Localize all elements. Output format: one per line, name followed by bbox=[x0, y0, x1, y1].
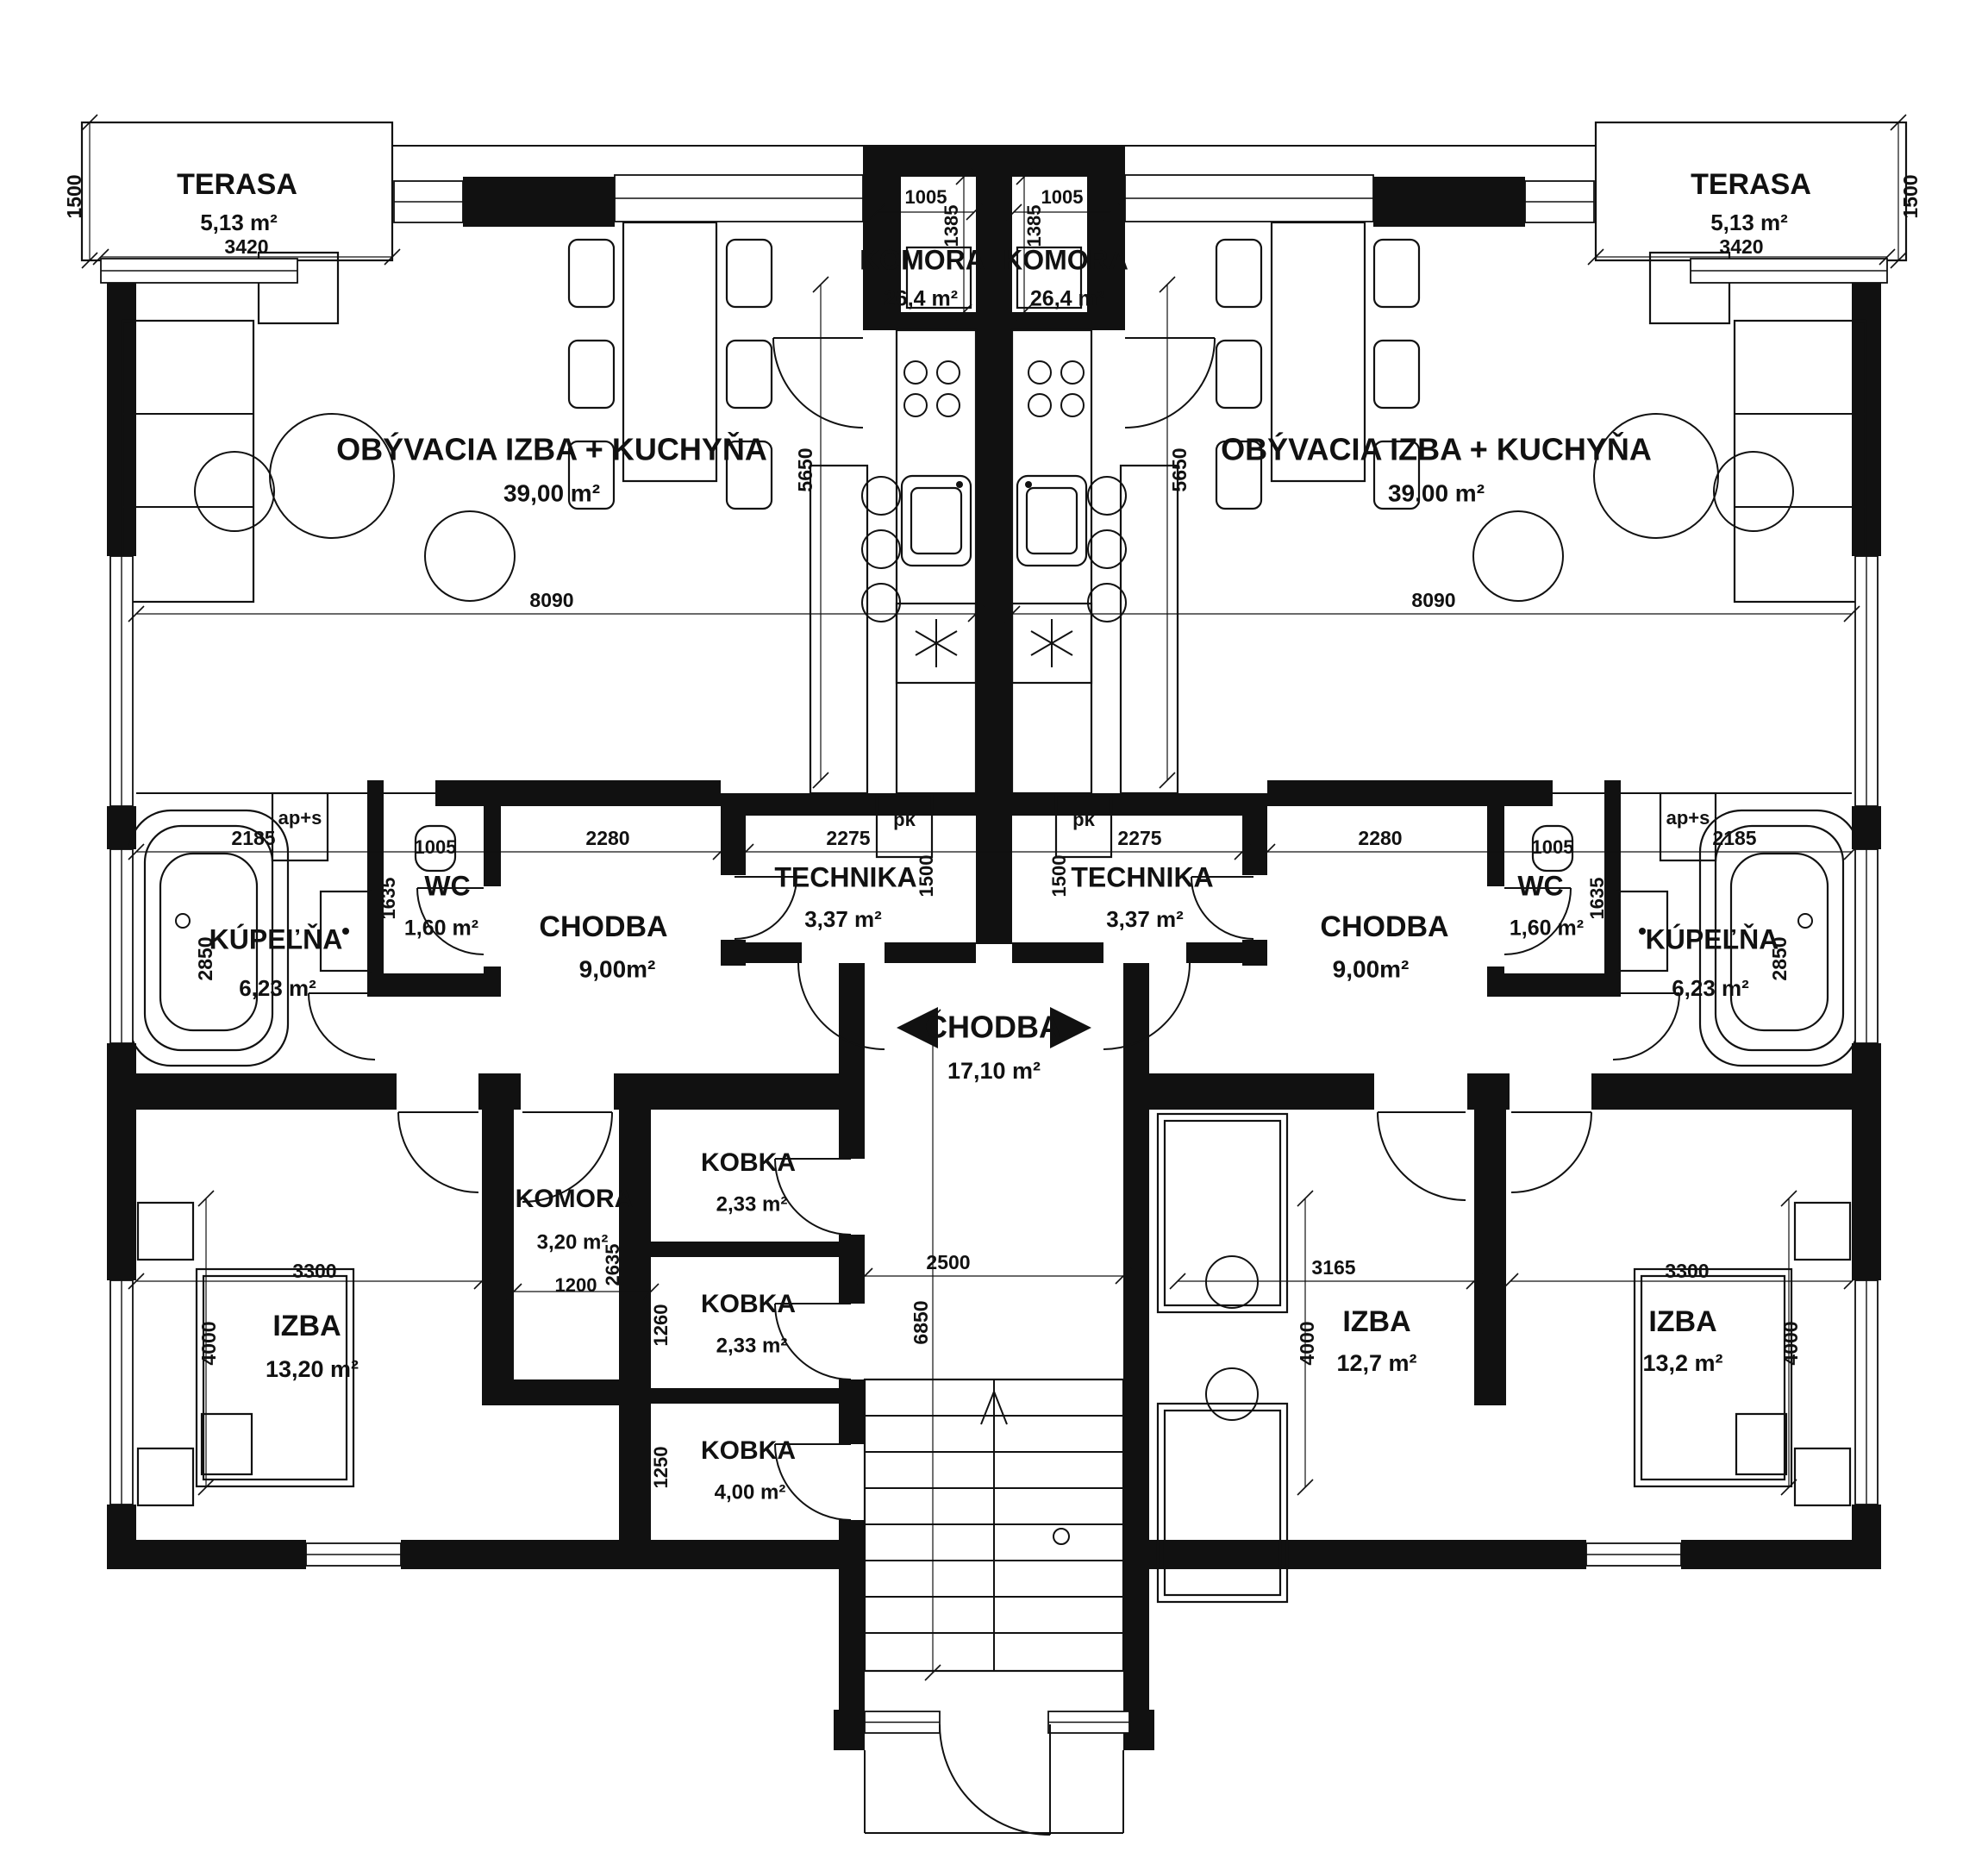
wall-segment bbox=[1591, 1073, 1852, 1110]
label-wc: WC bbox=[424, 870, 470, 901]
outline-rect bbox=[1027, 488, 1077, 554]
outline-circle bbox=[937, 361, 960, 384]
wall-segment bbox=[839, 1110, 865, 1159]
wall-segment bbox=[1467, 1073, 1510, 1110]
label-k-pe-a: KÚPEĽŇA bbox=[1646, 923, 1779, 954]
label-izba: IZBA bbox=[1648, 1305, 1716, 1338]
label-1005: 1005 bbox=[415, 836, 457, 858]
label-3165: 3165 bbox=[1311, 1256, 1355, 1279]
label-2275: 2275 bbox=[1117, 827, 1161, 849]
label-2-33-m: 2,33 m² bbox=[716, 1334, 788, 1357]
door-arc bbox=[773, 338, 863, 428]
label-1260: 1260 bbox=[650, 1304, 672, 1347]
label-izba: IZBA bbox=[272, 1310, 341, 1342]
label-komora: KOMORA bbox=[860, 244, 985, 275]
label-1-60-m: 1,60 m² bbox=[404, 916, 478, 941]
label-6850: 6850 bbox=[910, 1300, 932, 1344]
label-3-37-m: 3,37 m² bbox=[804, 906, 882, 932]
wall-segment bbox=[435, 780, 721, 806]
dot bbox=[342, 928, 349, 935]
door-arc bbox=[1378, 1112, 1466, 1200]
label-9-00m: 9,00m² bbox=[579, 955, 656, 982]
label-1500: 1500 bbox=[63, 174, 85, 218]
label-2500: 2500 bbox=[926, 1251, 970, 1273]
wall-segment bbox=[136, 1073, 397, 1110]
wall-segment bbox=[1852, 806, 1881, 849]
wall-segment bbox=[1487, 780, 1504, 886]
wall-segment bbox=[614, 1073, 865, 1110]
label-2185: 2185 bbox=[231, 827, 275, 849]
label-1500: 1500 bbox=[1899, 174, 1922, 218]
wall-segment bbox=[1474, 1110, 1506, 1405]
label-6-23-m: 6,23 m² bbox=[239, 975, 316, 1001]
label-technika: TECHNIKA bbox=[774, 861, 916, 892]
door-arc bbox=[1125, 338, 1215, 428]
label-2185: 2185 bbox=[1712, 827, 1756, 849]
label-chodba: CHODBA bbox=[1320, 910, 1448, 943]
label-4000: 4000 bbox=[1779, 1321, 1802, 1365]
label-5650: 5650 bbox=[1168, 447, 1191, 491]
outline-rect bbox=[1012, 330, 1091, 793]
outline-rect bbox=[727, 341, 772, 408]
label-2-33-m: 2,33 m² bbox=[716, 1192, 788, 1216]
wall-segment bbox=[721, 940, 746, 966]
label-1005: 1005 bbox=[1532, 836, 1574, 858]
wall-segment bbox=[651, 1242, 839, 1257]
wall-segment bbox=[746, 942, 802, 963]
wall-segment bbox=[746, 793, 976, 816]
wall-segment bbox=[1123, 1110, 1149, 1543]
label-chodba: CHODBA bbox=[539, 910, 667, 943]
dot bbox=[956, 481, 963, 488]
door-arc bbox=[309, 993, 375, 1060]
label-8090: 8090 bbox=[1411, 589, 1455, 611]
wall-segment bbox=[863, 146, 1125, 177]
plan-line bbox=[981, 1392, 994, 1424]
wall-segment bbox=[1123, 1540, 1586, 1569]
label-5-13-m: 5,13 m² bbox=[1710, 210, 1788, 235]
wall-segment bbox=[1123, 963, 1149, 1110]
wall-segment bbox=[1267, 780, 1553, 806]
floor-plan-svg: TERASA5,13 m²3420TERASA5,13 m²3420150015… bbox=[0, 0, 1988, 1858]
outline-rect bbox=[1216, 240, 1261, 307]
outline-rect bbox=[1795, 1448, 1850, 1505]
wall-segment bbox=[864, 312, 976, 329]
wall-segment bbox=[1123, 1073, 1374, 1110]
label-pk: pk bbox=[1072, 809, 1095, 830]
label-1385: 1385 bbox=[1023, 205, 1045, 247]
label-17-10-m: 17,10 m² bbox=[947, 1058, 1041, 1084]
door-arc bbox=[398, 1112, 478, 1192]
label-ob-vacia-izba-kuchy-a: OBÝVACIA IZBA + KUCHYŇA bbox=[336, 431, 767, 467]
label-1635: 1635 bbox=[378, 878, 399, 920]
outline-circle bbox=[1714, 452, 1793, 531]
wall-segment bbox=[478, 1073, 521, 1110]
label-terasa: TERASA bbox=[1691, 168, 1811, 201]
label-1635: 1635 bbox=[1586, 878, 1608, 920]
label-kobka: KOBKA bbox=[701, 1290, 796, 1318]
outline-circle bbox=[904, 361, 927, 384]
label-1200: 1200 bbox=[555, 1274, 597, 1296]
label-terasa: TERASA bbox=[177, 168, 297, 201]
wall-segment bbox=[136, 1540, 306, 1569]
label-26-4-m: 26,4 m² bbox=[1030, 287, 1104, 311]
label-1385: 1385 bbox=[941, 205, 962, 247]
wall-segment bbox=[1012, 942, 1103, 963]
wall-segment bbox=[1012, 312, 1124, 329]
label-3420: 3420 bbox=[1719, 235, 1763, 258]
label-2275: 2275 bbox=[826, 827, 870, 849]
outline-rect bbox=[138, 1203, 193, 1260]
wall-segment bbox=[401, 1540, 865, 1569]
wall-segment bbox=[1242, 793, 1267, 875]
label-2850: 2850 bbox=[1768, 936, 1791, 980]
wall-segment bbox=[484, 780, 501, 886]
wall-segment bbox=[839, 963, 865, 1110]
outline-rect bbox=[810, 466, 867, 793]
label-izba: IZBA bbox=[1342, 1305, 1410, 1338]
label-komora: KOMORA bbox=[1003, 244, 1128, 275]
label-39-00-m: 39,00 m² bbox=[503, 479, 600, 506]
outline-circle bbox=[904, 394, 927, 416]
wall-segment bbox=[107, 1043, 136, 1280]
outline-rect bbox=[911, 488, 961, 554]
outline-circle bbox=[425, 511, 515, 601]
wall-segment bbox=[1186, 942, 1242, 963]
label-1250: 1250 bbox=[650, 1447, 672, 1489]
label-ap-s: ap+s bbox=[1666, 807, 1710, 829]
label-ap-s: ap+s bbox=[278, 807, 322, 829]
label-5-13-m: 5,13 m² bbox=[200, 210, 278, 235]
wall-segment bbox=[1852, 1540, 1881, 1569]
wall-segment bbox=[463, 177, 615, 227]
label-13-2-m: 13,2 m² bbox=[1642, 1350, 1722, 1376]
label-4000: 4000 bbox=[197, 1321, 220, 1365]
label-kobka: KOBKA bbox=[701, 1148, 796, 1177]
outline-rect bbox=[1735, 321, 1866, 602]
outline-rect bbox=[1374, 240, 1419, 307]
label-1005: 1005 bbox=[1041, 186, 1084, 208]
label-komora: KOMORA bbox=[516, 1185, 634, 1213]
outline-circle bbox=[1028, 361, 1051, 384]
label-4-00-m: 4,00 m² bbox=[715, 1480, 786, 1504]
label-3-20-m: 3,20 m² bbox=[537, 1230, 609, 1254]
outline-rect bbox=[727, 240, 772, 307]
door-arc bbox=[1613, 993, 1679, 1060]
label-2635: 2635 bbox=[602, 1244, 623, 1286]
outline-rect bbox=[1736, 1414, 1786, 1474]
wall-segment bbox=[839, 1379, 865, 1444]
outline-rect bbox=[202, 1414, 252, 1474]
outline-rect bbox=[1795, 1203, 1850, 1260]
label-chodba: CHODBA bbox=[925, 1010, 1061, 1045]
outline-circle bbox=[1798, 914, 1812, 928]
label-ob-vacia-izba-kuchy-a: OBÝVACIA IZBA + KUCHYŇA bbox=[1221, 431, 1652, 467]
outline-circle bbox=[1473, 511, 1563, 601]
outline-circle bbox=[1206, 1256, 1258, 1308]
label-12-7-m: 12,7 m² bbox=[1336, 1350, 1416, 1376]
label-4000: 4000 bbox=[1296, 1321, 1318, 1365]
outline-circle bbox=[1206, 1368, 1258, 1420]
label-39-00-m: 39,00 m² bbox=[1388, 479, 1485, 506]
outline-rect bbox=[1635, 1269, 1791, 1486]
outline-rect bbox=[569, 341, 614, 408]
outline-circle bbox=[1028, 394, 1051, 416]
floor-plan: TERASA5,13 m²3420TERASA5,13 m²3420150015… bbox=[0, 0, 1988, 1858]
label-pk: pk bbox=[893, 809, 916, 830]
label-2280: 2280 bbox=[585, 827, 629, 849]
wall-segment bbox=[839, 1235, 865, 1304]
wall-segment bbox=[482, 1110, 514, 1405]
wall-segment bbox=[1852, 1043, 1881, 1280]
label-kobka: KOBKA bbox=[701, 1436, 796, 1465]
plan-line bbox=[994, 1392, 1007, 1424]
label-technika: TECHNIKA bbox=[1071, 861, 1213, 892]
outline-circle bbox=[1061, 394, 1084, 416]
label-3-37-m: 3,37 m² bbox=[1106, 906, 1184, 932]
wall-segment bbox=[651, 1388, 839, 1404]
wall-segment bbox=[976, 177, 1012, 944]
outline-rect bbox=[122, 321, 253, 602]
outline-rect bbox=[1374, 341, 1419, 408]
door-arc bbox=[940, 1724, 1050, 1835]
label-6-23-m: 6,23 m² bbox=[1672, 975, 1749, 1001]
dot bbox=[1025, 481, 1032, 488]
wall-segment bbox=[721, 793, 746, 875]
wall-segment bbox=[619, 1110, 651, 1543]
label-3300: 3300 bbox=[292, 1260, 336, 1282]
wall-segment bbox=[834, 1710, 865, 1750]
outline-rect bbox=[897, 330, 976, 793]
label-9-00m: 9,00m² bbox=[1333, 955, 1410, 982]
label-3300: 3300 bbox=[1665, 1260, 1709, 1282]
outline-rect bbox=[1121, 466, 1178, 793]
outline-circle bbox=[1061, 361, 1084, 384]
label-26-4-m: 26,4 m² bbox=[884, 287, 958, 311]
wall-segment bbox=[1373, 177, 1525, 227]
outline-circle bbox=[1053, 1529, 1069, 1544]
label-13-20-m: 13,20 m² bbox=[266, 1356, 359, 1382]
wall-segment bbox=[107, 806, 136, 849]
wall-segment bbox=[839, 1520, 865, 1543]
label-1-60-m: 1,60 m² bbox=[1510, 916, 1584, 941]
wall-segment bbox=[885, 942, 976, 963]
label-1500: 1500 bbox=[916, 855, 937, 898]
wall-segment bbox=[367, 973, 501, 997]
label-3420: 3420 bbox=[224, 235, 268, 258]
outline-circle bbox=[937, 394, 960, 416]
label-2850: 2850 bbox=[194, 936, 216, 980]
wall-segment bbox=[1242, 940, 1267, 966]
label-5650: 5650 bbox=[794, 447, 816, 491]
label-8090: 8090 bbox=[529, 589, 573, 611]
door-arc bbox=[1511, 1112, 1591, 1192]
label-k-pe-a: KÚPEĽŇA bbox=[209, 923, 343, 954]
label-1005: 1005 bbox=[905, 186, 947, 208]
outline-rect bbox=[569, 240, 614, 307]
outline-rect bbox=[138, 1448, 193, 1505]
outline-circle bbox=[176, 914, 190, 928]
outline-circle bbox=[195, 452, 274, 531]
outline-rect bbox=[1216, 341, 1261, 408]
outline-rect bbox=[1158, 1404, 1287, 1602]
wall-segment bbox=[107, 1540, 136, 1569]
label-wc: WC bbox=[1517, 870, 1563, 901]
wall-segment bbox=[1487, 973, 1621, 997]
wall-segment bbox=[514, 1379, 651, 1405]
wall-segment bbox=[1681, 1540, 1852, 1569]
label-2280: 2280 bbox=[1358, 827, 1402, 849]
label-1500: 1500 bbox=[1048, 855, 1070, 898]
wall-segment bbox=[1012, 793, 1242, 816]
